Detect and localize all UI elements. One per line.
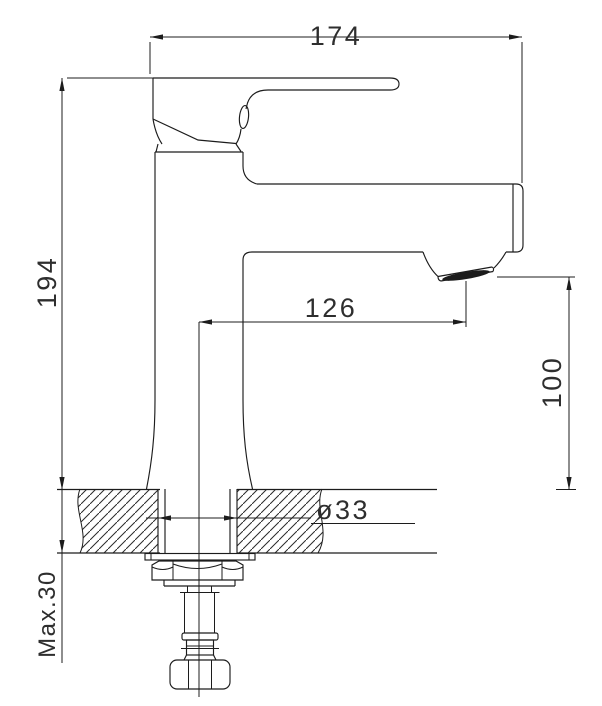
dim-label-spout-reach: 126 (305, 293, 358, 323)
dim-label-max-thickness: Max.30 (34, 570, 61, 658)
countertop-hatch-right (237, 489, 323, 553)
dim-label-overall-height: 194 (32, 256, 62, 309)
dim-label-spout-height: 100 (537, 356, 567, 409)
countertop-hatch-left (78, 489, 158, 553)
dim-label-overall-width: 174 (310, 21, 363, 51)
background (0, 0, 602, 706)
drawing-page: 174 194 Max.30 126 100 ø33 (0, 0, 602, 706)
dim-label-hole-diameter: ø33 (316, 495, 370, 525)
faucet-technical-drawing: 174 194 Max.30 126 100 ø33 (0, 0, 602, 706)
